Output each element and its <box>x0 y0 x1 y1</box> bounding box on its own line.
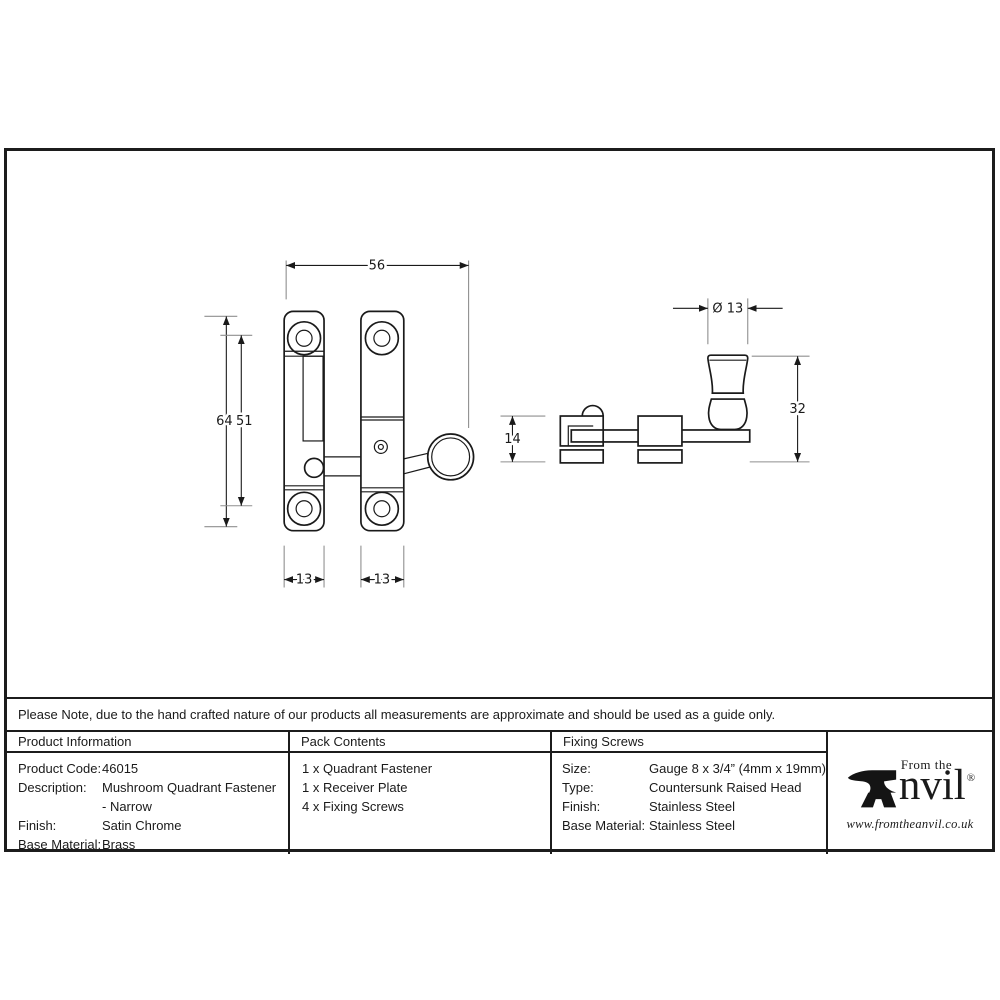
spec-table: Product Information Pack Contents Fixing… <box>7 730 992 854</box>
sheet-frame: 56 64 51 13 <box>4 148 995 852</box>
list-item: 1 x Receiver Plate <box>302 778 550 797</box>
header-pack-contents: Pack Contents <box>288 732 550 753</box>
dim-overall-height: 64 <box>216 414 232 429</box>
fixing-screws-cell: Size:Gauge 8 x 3/4” (4mm x 19mm) Type:Co… <box>550 753 826 854</box>
table-row: Base Material:Stainless Steel <box>562 816 826 835</box>
pivot-hole <box>374 440 387 453</box>
list-item: 1 x Quadrant Fastener <box>302 759 550 778</box>
screw-holes <box>288 322 399 525</box>
header-product-information: Product Information <box>7 732 288 753</box>
table-row: - Narrow <box>18 797 288 816</box>
logo-url: www.fromtheanvil.co.uk <box>846 817 973 832</box>
logo-name: nvil® <box>899 770 974 812</box>
pack-contents-cell: 1 x Quadrant Fastener 1 x Receiver Plate… <box>288 753 550 854</box>
table-row: Finish:Satin Chrome <box>18 816 288 835</box>
mushroom-knob <box>708 355 748 429</box>
dim-right-plate-width: 13 <box>374 573 390 588</box>
table-row: Description:Mushroom Quadrant Fastener <box>18 778 288 797</box>
list-item: 4 x Fixing Screws <box>302 797 550 816</box>
receiver-plate <box>284 311 324 530</box>
anvil-icon <box>846 764 898 810</box>
fastener-body <box>638 416 682 446</box>
dim-hole-centres: 51 <box>236 414 252 429</box>
spec-sheet: 56 64 51 13 <box>0 0 1000 1000</box>
table-row: Base Material:Brass <box>18 835 288 854</box>
brand-logo: From the nvil® www.fromtheanvil.co.uk <box>826 732 992 854</box>
receiver-slot <box>303 356 323 441</box>
screw-head-dome <box>582 406 603 416</box>
product-information-cell: Product Code:46015 Description:Mushroom … <box>7 753 288 854</box>
bar-end <box>305 458 324 477</box>
table-row: Type:Countersunk Raised Head <box>562 778 826 797</box>
knob-ring <box>428 434 474 480</box>
drawing-area: 56 64 51 13 <box>7 151 992 697</box>
dim-knob-diameter: Ø 13 <box>712 301 743 316</box>
technical-drawing: 56 64 51 13 <box>7 151 992 697</box>
table-row: Size:Gauge 8 x 3/4” (4mm x 19mm) <box>562 759 826 778</box>
header-fixing-screws: Fixing Screws <box>550 732 826 753</box>
side-view: Ø 13 32 14 <box>500 298 809 462</box>
note-text: Please Note, due to the hand crafted nat… <box>18 707 775 722</box>
dim-knob-overall-height: 32 <box>789 402 805 417</box>
table-row: Finish:Stainless Steel <box>562 797 826 816</box>
dim-left-plate-width: 13 <box>296 573 312 588</box>
dim-bracket-height: 14 <box>504 432 520 447</box>
measurement-note: Please Note, due to the hand crafted nat… <box>7 697 992 730</box>
front-view: 56 64 51 13 <box>204 258 473 587</box>
registered-mark: ® <box>967 772 975 784</box>
dim-overall-width: 56 <box>369 258 385 273</box>
table-row: Product Code:46015 <box>18 759 288 778</box>
